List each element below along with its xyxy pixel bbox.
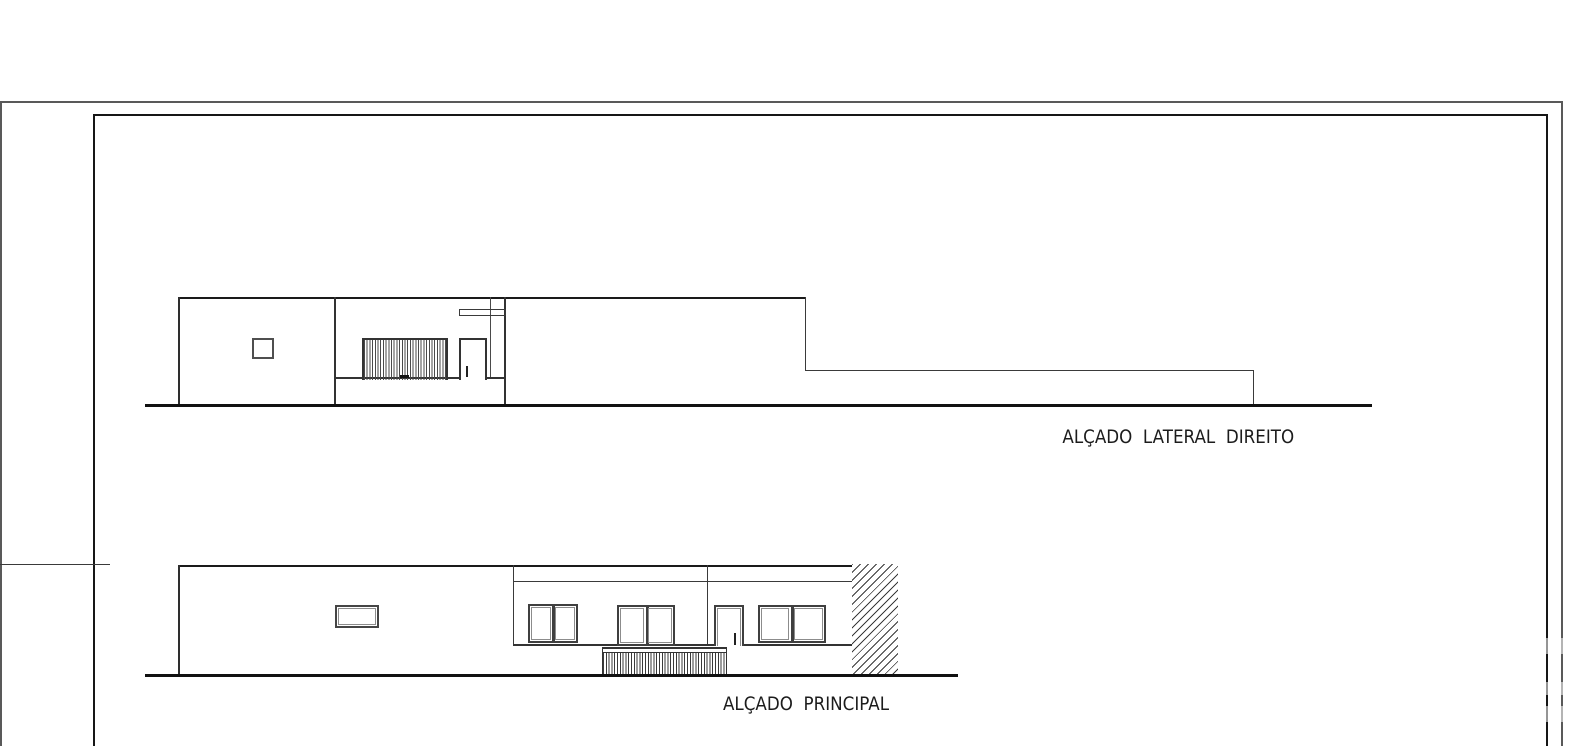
window-pane [648,608,672,643]
window-pane [338,608,376,625]
window-pane [794,608,823,640]
step-down-edge [805,297,806,371]
fold-mark-line [0,564,110,565]
right-wall-edge [1253,370,1254,405]
roof-line [178,297,806,299]
watermark-patch [1542,706,1568,722]
inner-border-top [93,114,1548,116]
horizontal-window [335,605,379,628]
entry-door [459,338,487,380]
wall-division-line [334,297,336,407]
window-pane [555,607,575,640]
outer-border-top [0,101,1563,103]
drawing-sheet: ALÇADO LATERAL DIREITO [0,0,1588,746]
roof-line [178,565,852,567]
door-pane [717,608,741,646]
wall-division-line [707,565,708,645]
railing-balusters [603,653,726,674]
canopy-ledge [459,309,506,316]
ground-line [145,674,958,677]
watermark-patch [1542,682,1568,695]
inner-border-left [93,114,95,746]
watermark-patch [1542,638,1568,654]
ground-line [145,404,1372,407]
double-window [758,605,826,643]
wall-division-line [513,565,514,645]
square-window [252,338,274,359]
left-wall-edge [178,565,180,675]
elevation-label-lateral: ALÇADO LATERAL DIREITO [1062,427,1273,448]
lower-roof-line [805,370,1254,371]
section-cut-hatch [852,564,898,674]
fascia-line [513,581,852,582]
porch-floor-line [513,644,852,646]
french-window [617,605,675,646]
window-pane [761,608,789,640]
left-wall-edge [178,297,180,407]
outer-border-left [0,101,2,746]
garage-door [362,338,448,380]
garage-door-handle [400,375,409,378]
elevation-label-principal: ALÇADO PRINCIPAL [718,694,894,715]
window-pane [531,607,551,640]
window-pane [620,608,644,643]
entry-door-handle [466,366,468,377]
double-window [528,604,578,643]
balcony-railing [602,647,727,674]
balcony-door-handle [734,633,736,645]
balcony-door [714,605,744,646]
